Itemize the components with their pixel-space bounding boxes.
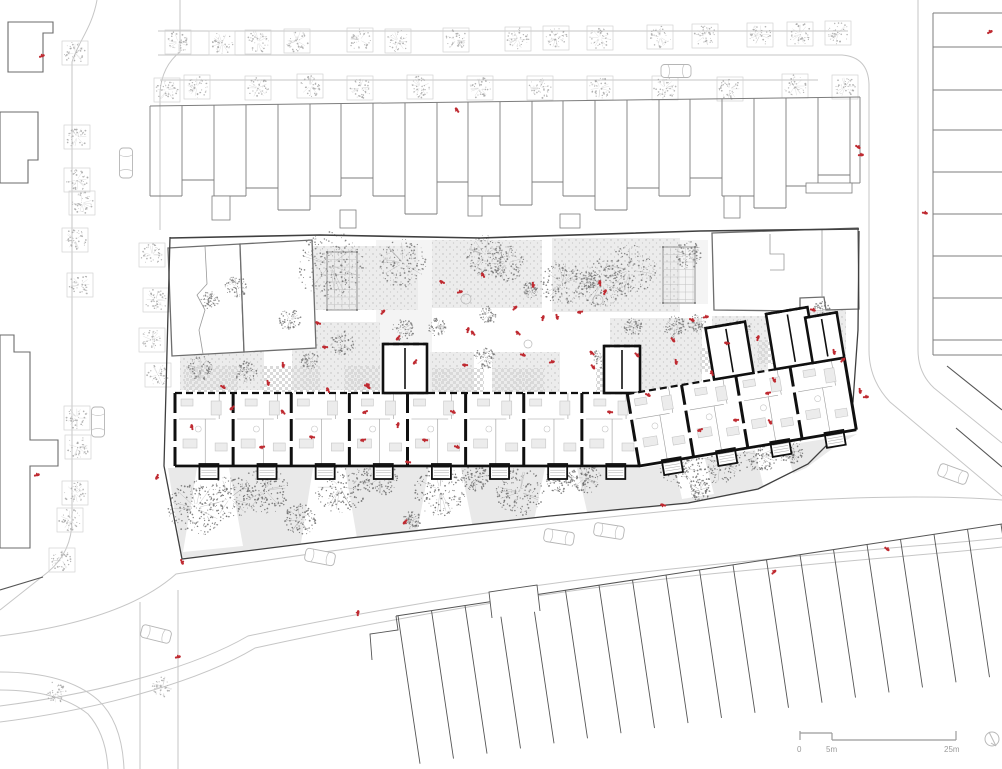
tree-icon [719,79,740,100]
site-plan-drawing: 0 5m 25m [0,0,1002,769]
context-party-wall [432,611,454,759]
person-marker [863,394,869,398]
tree-icon [64,482,86,502]
context-party-wall [633,580,655,728]
furniture [726,426,739,436]
furniture [564,443,576,451]
tree-icon [168,31,188,52]
furniture [672,435,685,445]
furniture [661,395,673,410]
car-icon [937,463,970,485]
furniture [781,417,794,427]
furniture [331,443,343,451]
person-marker [155,474,161,481]
person-marker [858,152,864,156]
furniture [390,443,402,451]
tree-icon [301,75,321,97]
furniture [273,443,285,451]
paved-terrace [492,368,544,392]
context-building [560,214,580,228]
context-building [8,22,53,72]
tree-icon [46,682,66,703]
context-building [468,196,482,216]
furniture [181,399,193,406]
tree-planter [64,406,90,430]
context-building [370,616,398,660]
context-building [340,210,356,228]
tree-icon [146,365,168,385]
stair-tower [706,322,754,380]
context-party-wall [465,606,487,754]
context-party-wall [767,560,789,708]
stair-tower [383,344,427,393]
tree-icon [66,409,88,430]
tree-planter [165,30,191,54]
tree-icon [146,289,167,310]
furniture [751,418,766,429]
context-building [0,335,58,548]
tree-icon [350,29,370,49]
furniture [386,401,396,415]
scale-label-25m: 25m [944,745,960,754]
tree-icon [67,437,88,458]
person-marker [555,313,560,320]
context-party-wall [700,570,722,718]
furniture [824,368,836,383]
tree-icon [66,229,87,249]
person-marker [986,29,993,35]
street-edge [947,366,1002,410]
person-marker [590,363,597,370]
tree-icon [790,23,810,44]
furniture [478,399,490,406]
person-marker [922,210,929,215]
furniture [643,436,658,447]
car-icon [543,528,575,546]
street-edge [0,577,43,590]
context-building [724,196,740,218]
furniture [806,409,821,420]
tree-planter [64,125,90,149]
furniture [414,399,426,406]
furniture [532,439,546,448]
existing-building [712,228,859,311]
stair-tower [805,312,844,363]
tree-icon [835,78,855,96]
context-building [212,196,230,220]
context-party-wall [499,600,521,748]
tree-planter [692,24,718,48]
furniture [245,399,257,406]
site-plan-canvas: 0 5m 25m [0,0,1002,769]
tree-planter [443,28,469,52]
furniture [269,401,279,415]
tree-planter [62,481,88,505]
furniture [560,401,570,415]
context-party-wall [398,616,420,764]
tree-icon [67,128,87,147]
car-icon [661,65,691,78]
tree-icon [64,42,86,62]
street-curb [0,538,1002,706]
tree-icon [411,76,430,99]
scale-label-5m: 5m [826,745,837,754]
car-icon [140,624,172,644]
person-marker [855,143,862,149]
paved-terrace [432,368,484,392]
tree-icon [66,169,88,190]
furniture [361,399,373,406]
tree-icon [156,81,179,99]
person-marker [469,330,476,337]
tree-planter [245,30,271,54]
context-party-wall [968,529,990,677]
person-marker [702,314,709,319]
tree-icon [785,74,807,95]
person-marker [355,610,359,617]
tree-icon [446,29,466,48]
north-arrow-icon [985,732,999,746]
context-party-wall [800,555,822,703]
furniture [474,439,488,448]
paved-terrace [262,366,320,392]
person-marker [540,315,545,322]
tree-icon [142,330,161,349]
tree-icon [750,26,771,45]
person-marker [588,350,595,357]
tree-icon [72,192,93,214]
scale-bar-line [800,731,956,740]
tree-icon [350,79,370,99]
context-party-wall [834,550,856,698]
tree-planter [67,273,93,297]
tree-icon [828,22,848,44]
street-edge [956,428,1002,467]
tree-icon [474,348,495,369]
person-marker [858,387,863,394]
existing-building [240,240,316,352]
tree-planter [139,328,165,352]
tree-icon [287,31,309,53]
furniture [618,401,628,415]
context-building [806,183,852,193]
context-party-wall [532,595,554,743]
furniture [215,443,227,451]
person-marker [33,472,40,477]
context-party-wall [733,565,755,713]
context-party-wall [666,575,688,723]
furniture [183,439,197,448]
person-marker [453,107,460,114]
car-icon [593,522,625,540]
context-party-wall [599,585,621,733]
tree-icon [479,306,496,323]
tree-icon [650,26,671,48]
car-icon [120,148,133,178]
furniture [241,439,255,448]
furniture [590,439,604,448]
tree-icon [51,551,71,571]
furniture [835,408,848,418]
furniture [299,439,313,448]
furniture [297,399,309,406]
tree-icon [188,76,208,98]
garden-plot [432,240,542,308]
furniture [715,386,727,401]
tree-icon [58,509,80,531]
car-icon [92,407,105,437]
tree-icon [589,78,610,98]
courtyard-furniture [524,340,532,348]
furniture [622,443,634,451]
furniture [327,401,337,415]
scale-bar: 0 5m 25m [797,731,960,754]
person-marker [514,330,521,337]
tree-icon [387,30,407,52]
context-party-wall [901,539,923,687]
furniture [211,401,221,415]
furniture [594,399,606,406]
furniture [502,401,512,415]
tree-icon [248,32,269,53]
tree-icon [212,33,233,54]
paved-terrace [344,366,380,392]
tree-icon [141,243,163,262]
tree-planter [64,168,90,192]
context-building [489,585,540,618]
context-party-wall [934,534,956,682]
tree-planter [143,288,169,312]
furniture [530,399,542,406]
person-marker [465,327,470,334]
tree-planter [62,228,88,252]
furniture [697,427,712,438]
furniture [506,443,518,451]
scale-label-zero: 0 [797,745,802,754]
street-curb [0,690,108,769]
context-row-front [150,97,860,106]
tree-planter [49,548,75,572]
tree-planter [57,508,83,532]
context-party-wall [867,544,889,692]
context-party-wall [566,590,588,738]
person-marker [770,568,777,575]
tree-icon [529,78,552,99]
tree-icon [694,26,715,45]
context-row-front [396,524,1002,616]
context-building [0,112,38,183]
